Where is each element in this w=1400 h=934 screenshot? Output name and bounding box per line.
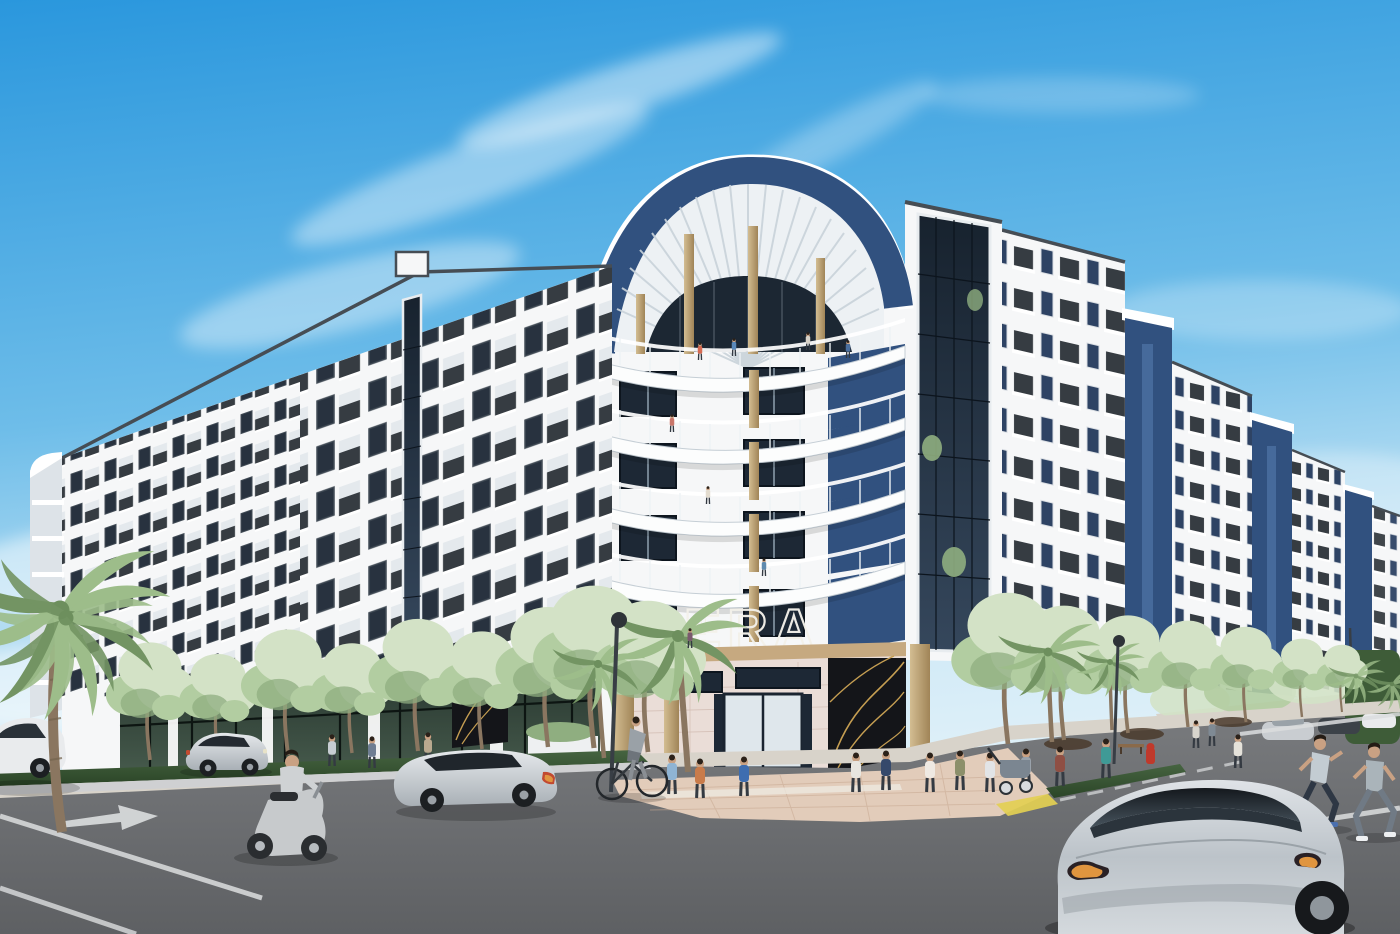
corner-right-pilaster (905, 202, 1002, 662)
lamp-head (1113, 635, 1125, 647)
headlight (263, 749, 267, 754)
jogger2-tank (1366, 760, 1384, 792)
interior-plant (942, 547, 966, 577)
stair-glass-strip (403, 295, 421, 644)
era-building-rendering: ERA THE (0, 0, 1400, 934)
planter-shrubs (526, 722, 594, 742)
gray-wagon-sedan (394, 750, 557, 821)
fire-hydrant (1146, 743, 1155, 764)
interior-plant (967, 289, 983, 311)
interior-plant (922, 435, 942, 461)
transom-window (736, 668, 820, 688)
scooter-seat (270, 792, 298, 801)
taillight (186, 750, 190, 755)
lamp-head (611, 612, 627, 628)
rendering-canvas: ERA THE (0, 0, 1400, 934)
stair-core-parapet (396, 252, 428, 276)
